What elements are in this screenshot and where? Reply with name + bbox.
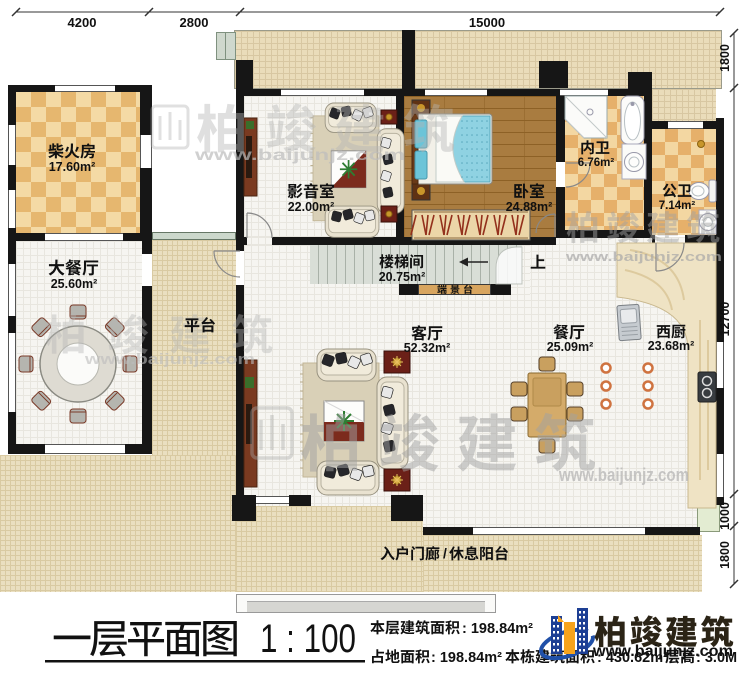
- svg-text:www.baijunjz.com: www.baijunjz.com: [565, 249, 722, 264]
- svg-text:25.60m²: 25.60m²: [51, 277, 98, 291]
- svg-text:20.75m²: 20.75m²: [379, 270, 426, 284]
- svg-text:17.60m²: 17.60m²: [49, 160, 96, 174]
- svg-text:22.00m²: 22.00m²: [288, 200, 335, 214]
- svg-text:7.14m²: 7.14m²: [659, 200, 696, 212]
- svg-text:23.68m²: 23.68m²: [648, 339, 695, 353]
- svg-text:/: /: [443, 545, 447, 561]
- svg-text:www.baijunjz.com: www.baijunjz.com: [592, 643, 733, 660]
- svg-text:1800: 1800: [718, 541, 732, 569]
- svg-text:25.09m²: 25.09m²: [547, 340, 594, 354]
- svg-text:2800: 2800: [180, 15, 209, 30]
- svg-text:: 198.84m²: : 198.84m²: [462, 621, 533, 637]
- svg-text:6.76m²: 6.76m²: [578, 157, 615, 169]
- svg-text:24.88m²: 24.88m²: [506, 200, 553, 214]
- svg-text:52.32m²: 52.32m²: [404, 341, 451, 355]
- svg-text:: 198.84m²: : 198.84m²: [431, 650, 502, 666]
- svg-text:1000: 1000: [718, 502, 732, 530]
- svg-text:12700: 12700: [718, 302, 732, 337]
- svg-text:1800: 1800: [718, 44, 732, 72]
- svg-text:15000: 15000: [469, 15, 505, 30]
- svg-text:www.baijunjz.com: www.baijunjz.com: [84, 351, 255, 368]
- svg-text:4200: 4200: [68, 15, 97, 30]
- svg-text:www.baijunjz.com: www.baijunjz.com: [558, 465, 689, 485]
- svg-text:www.baijunjz.com: www.baijunjz.com: [193, 147, 405, 164]
- svg-text:1 : 100: 1 : 100: [260, 617, 356, 661]
